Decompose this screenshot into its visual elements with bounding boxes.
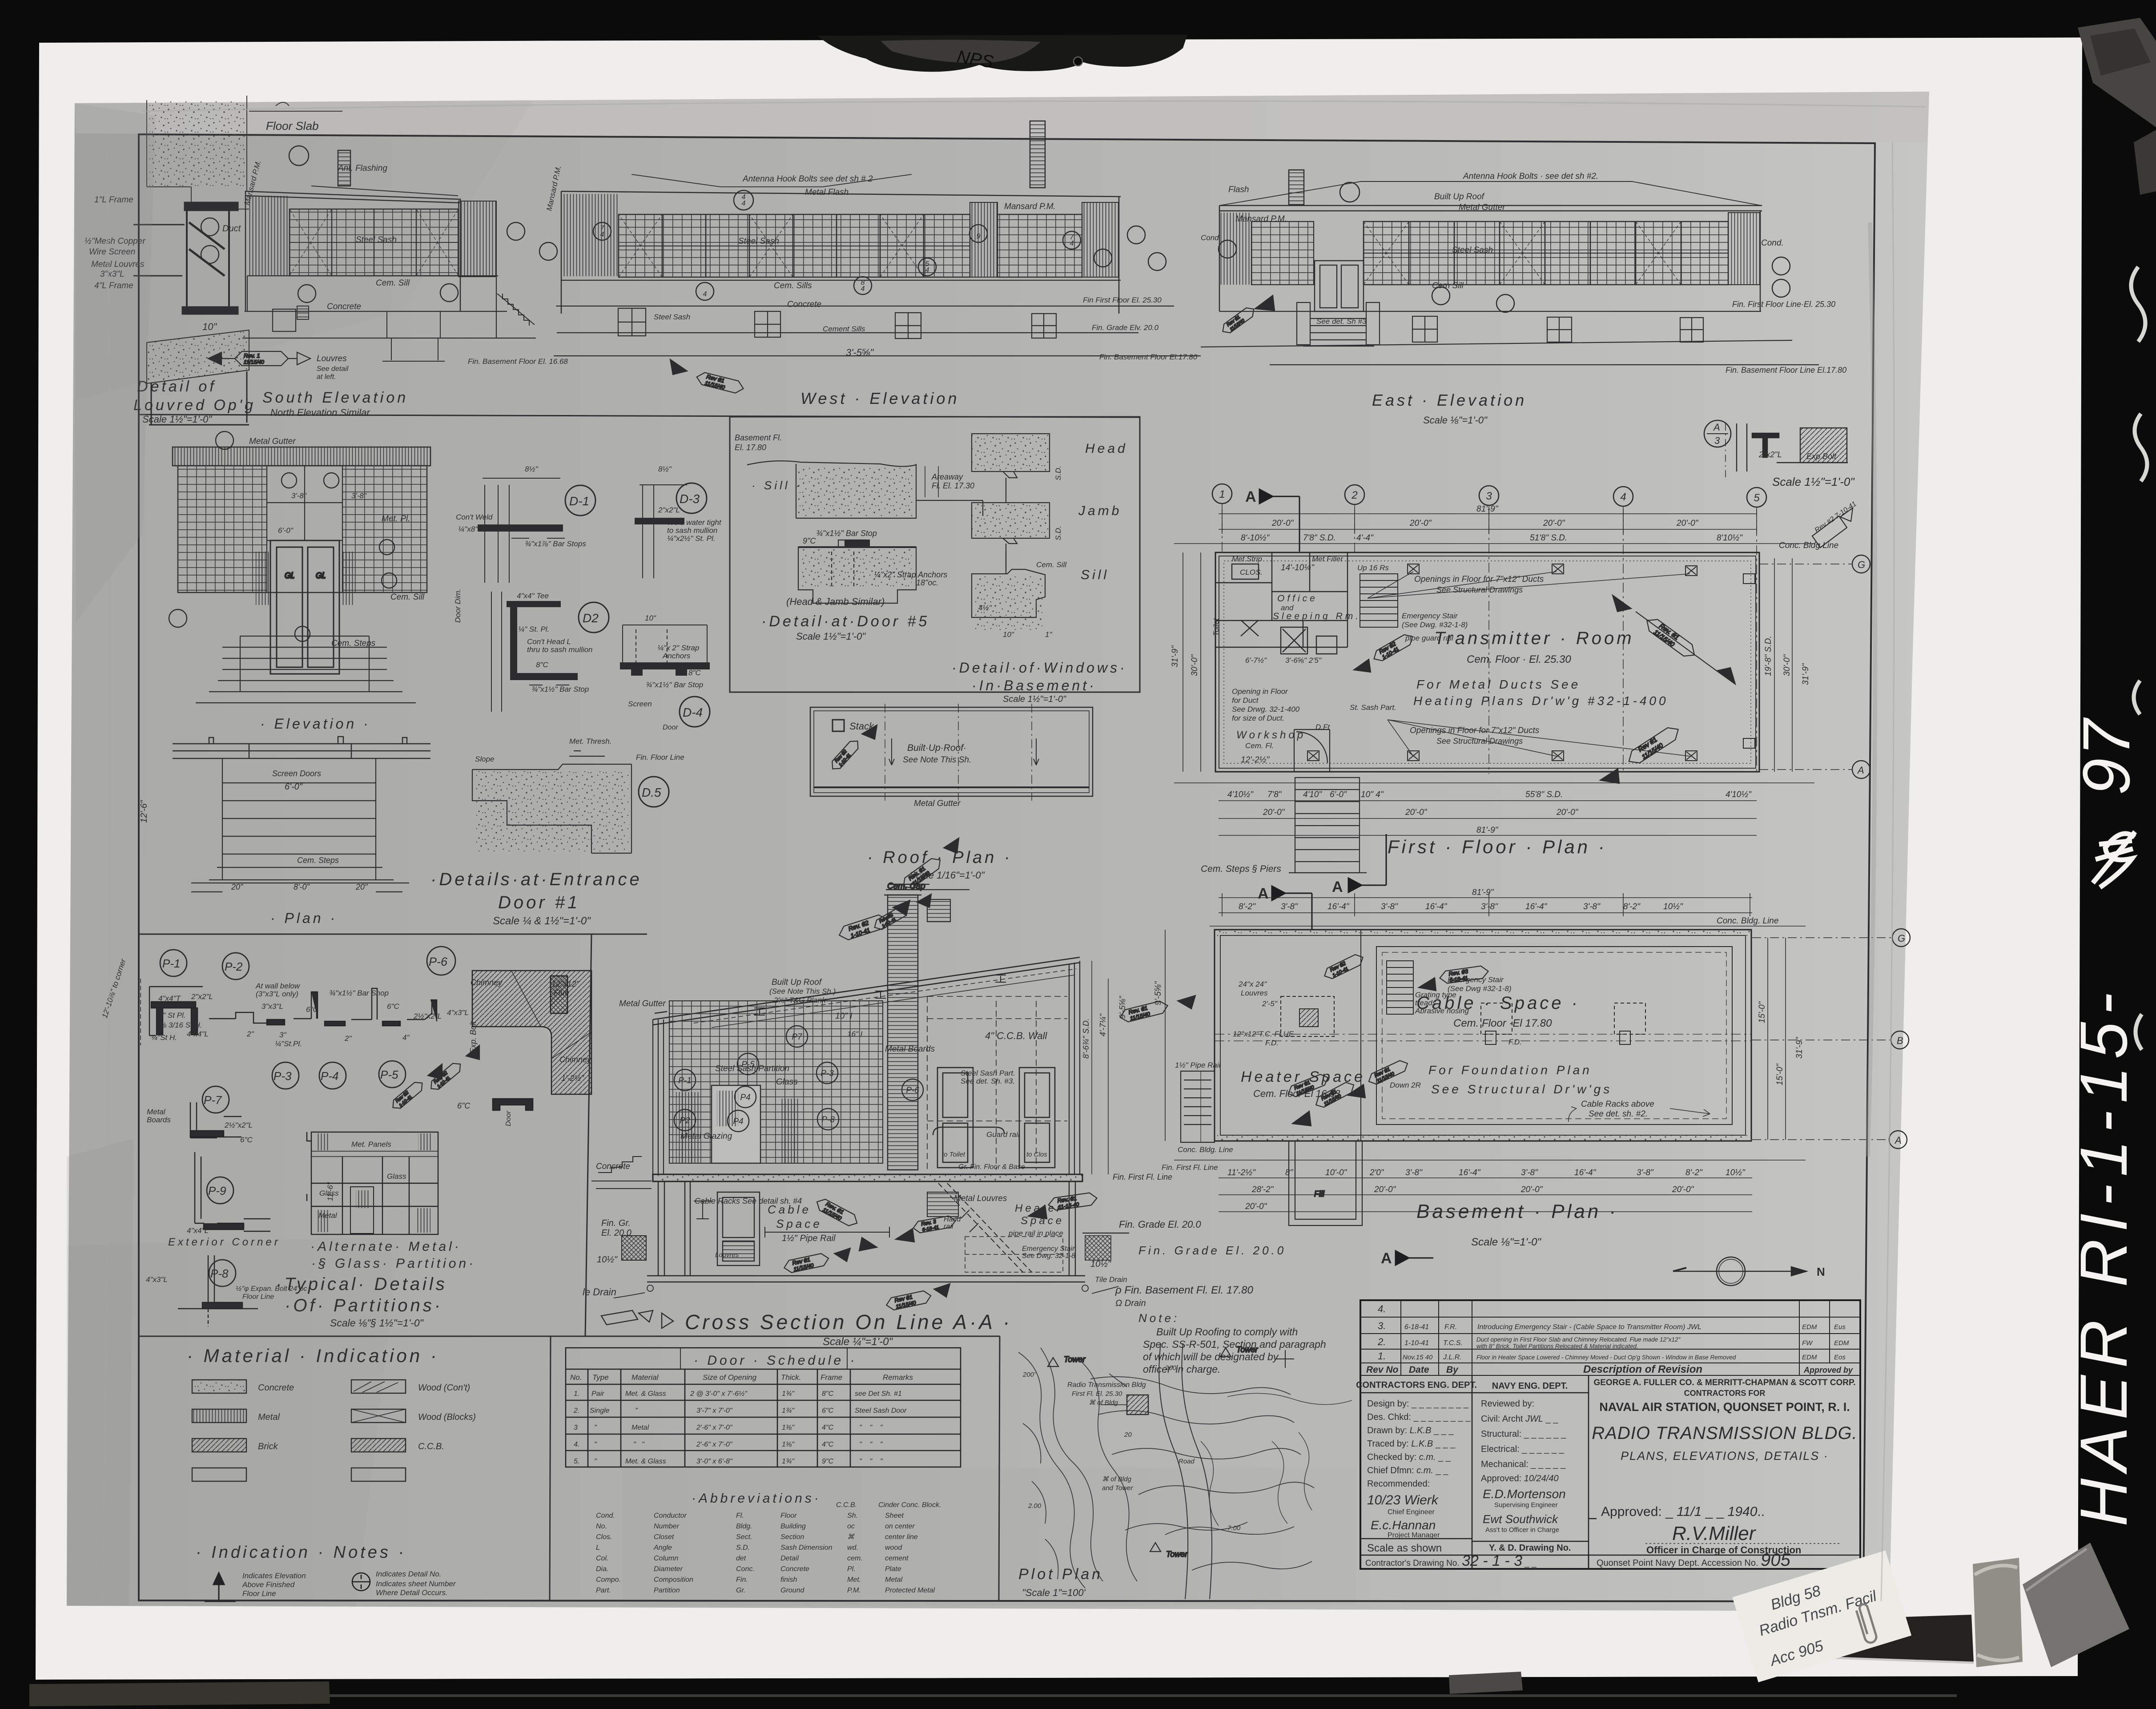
svg-text:P-3: P-3 [821,1069,834,1078]
svg-text:2'-5": 2'-5" [1262,1000,1278,1008]
svg-text:Cond.: Cond. [1201,234,1221,242]
svg-text:Traced by: L.K.B _ _ _: Traced by: L.K.B _ _ _ [1367,1439,1456,1449]
svg-text:1½" Pipe Rail: 1½" Pipe Rail [782,1233,836,1243]
svg-text:10" 4": 10" 4" [1361,790,1384,799]
svg-text:P-3: P-3 [274,1069,292,1083]
svg-text:P-4: P-4 [321,1069,338,1083]
svg-text:20": 20" [231,883,244,891]
svg-text:1'-2½": 1'-2½" [561,1074,584,1083]
svg-text:Slope: Slope [475,755,494,763]
svg-text:CLOS.: CLOS. [1240,568,1263,576]
svg-text:Conc. Bldg Line: Conc. Bldg Line [1779,541,1838,550]
svg-text:Fin. Grade El. 20.0: Fin. Grade El. 20.0 [1138,1244,1286,1257]
svg-text:Indicates sheet Number: Indicates sheet Number [376,1580,456,1588]
svg-text:Flue: Flue [554,988,569,997]
svg-text:Remarks: Remarks [883,1373,913,1382]
svg-text:200': 200' [1165,1364,1178,1372]
svg-text:to sash mullion: to sash mullion [667,526,717,535]
svg-text:rail: rail [944,1223,953,1230]
svg-text:11'-6": 11'-6" [326,1182,334,1201]
svg-text:20'-0": 20'-0" [1263,808,1285,817]
svg-text:Built Up Roofing to comply wit: Built Up Roofing to comply with [1156,1326,1298,1338]
svg-text:2": 2" [246,1030,254,1038]
svg-text:Met. Thresh.: Met. Thresh. [569,737,611,746]
svg-text:4"C: 4"C [822,1441,834,1448]
svg-text:" " ": " " " [859,1458,883,1465]
svg-text:Steel Sash Door: Steel Sash Door [855,1407,907,1415]
svg-text:8½": 8½" [658,465,672,473]
svg-text:Thick.: Thick. [781,1373,801,1382]
svg-text:¼"x8" St Pl.: ¼"x8" St Pl. [458,525,498,533]
svg-text:Metal Gutter: Metal Gutter [914,799,961,808]
svg-text:Transmitter · Room: Transmitter · Room [1434,629,1634,648]
svg-text:4: 4 [1620,491,1626,503]
svg-text:Project Manager: Project Manager [1388,1532,1440,1539]
svg-text:Type: Type [592,1373,609,1382]
svg-text:Flash: Flash [1228,185,1249,194]
svg-text:3'-8": 3'-8" [351,492,367,500]
svg-text:Scale ¼ & 1½"=1'-0": Scale ¼ & 1½"=1'-0" [493,915,591,927]
svg-text:31'-9": 31'-9" [1801,663,1810,685]
svg-text:Nov.15 40: Nov.15 40 [1403,1354,1433,1361]
svg-text:Guard rail: Guard rail [986,1130,1020,1139]
svg-text:First Fl. El. 25.30: First Fl. El. 25.30 [1072,1390,1122,1398]
svg-text:4: 4 [925,266,929,274]
svg-text:Con't Weld: Con't Weld [456,513,493,521]
svg-text:See Drwg. 32-1-400: See Drwg. 32-1-400 [1232,705,1300,713]
svg-text:3'-8": 3'-8" [1521,1168,1538,1177]
svg-text:Material: Material [632,1373,659,1382]
svg-text:to Toilet: to Toilet [942,1151,965,1158]
svg-text:E.D.Mortenson: E.D.Mortenson [1483,1487,1566,1501]
svg-text:Con't Head L: Con't Head L [527,637,571,646]
svg-text:Met. & Glass: Met. & Glass [625,1390,666,1398]
svg-text:Ewt Southwick: Ewt Southwick [1483,1512,1559,1526]
svg-text:3": 3" [279,1031,286,1039]
svg-text:20'-0": 20'-0" [1543,519,1565,528]
svg-text:6"C: 6"C [306,1005,318,1014]
svg-text:First · Floor · Plan ·: First · Floor · Plan · [1388,836,1607,857]
svg-text:For Foundation Plan: For Foundation Plan [1428,1063,1592,1077]
svg-text:Door #1: Door #1 [498,893,580,912]
svg-text:Metal Flash: Metal Flash [805,188,849,197]
svg-text:2"x2"L: 2"x2"L [658,506,680,514]
svg-text:¼"St H.: ¼"St H. [151,1033,177,1042]
svg-text:2.: 2. [573,1407,579,1415]
svg-text:8'-2": 8'-2" [1239,902,1256,911]
svg-text:South Elevation: South Elevation [262,389,408,406]
svg-text:D2: D2 [583,611,599,625]
svg-text:· Elevation ·: · Elevation · [260,716,371,732]
svg-text:L: L [596,1544,600,1552]
svg-text:2'0": 2'0" [1369,1168,1384,1177]
svg-text:" " ": " " " [859,1424,883,1431]
svg-text:20'-0": 20'-0" [1374,1185,1396,1194]
svg-text:¼"x2½" St. Pl.: ¼"x2½" St. Pl. [667,534,715,543]
svg-text:6'-7½": 6'-7½" [1245,656,1267,665]
svg-text:6'-0": 6'-0" [1330,790,1347,799]
svg-text:A: A [1381,1250,1392,1267]
svg-text:El. 20.0: El. 20.0 [601,1228,632,1238]
svg-text:P4: P4 [740,1093,750,1102]
svg-text:Note:: Note: [1138,1311,1179,1325]
svg-text:Recommended:: Recommended: [1367,1479,1430,1489]
svg-text:Emergency Stair: Emergency Stair [1022,1245,1075,1253]
svg-text:Approved by: Approved by [1803,1366,1853,1374]
svg-text:3'-8": 3'-8" [291,492,307,500]
svg-text:A: A [1258,885,1269,902]
svg-text:30'-0": 30'-0" [1190,654,1199,676]
svg-text:Weld water tight: Weld water tight [667,518,722,527]
svg-text:4: 4 [1070,240,1074,247]
svg-text:J.L.R.: J.L.R. [1443,1354,1462,1361]
svg-text:Supervising Engineer: Supervising Engineer [1494,1501,1558,1509]
svg-text:F.D.: F.D. [1265,1039,1279,1047]
svg-text:5.: 5. [574,1458,579,1465]
svg-text:Metal Glazing: Metal Glazing [680,1132,732,1141]
svg-text:¼"x2" Strap Anchors: ¼"x2" Strap Anchors [874,570,947,579]
svg-text:1.: 1. [574,1390,579,1398]
svg-text:3'-6⅝" 2'5": 3'-6⅝" 2'5" [1285,656,1322,665]
svg-text:Openings in Floor for 7"x12" D: Openings in Floor for 7"x12" Ducts [1414,575,1544,584]
svg-text:(See Dwg #32-1-8): (See Dwg #32-1-8) [1448,984,1512,993]
svg-text:Cross Section On Line A·A ·: Cross Section On Line A·A · [685,1310,1012,1334]
svg-text:5: 5 [1754,492,1760,504]
svg-text:81'-9": 81'-9" [1472,888,1494,897]
svg-text:A: A [1245,488,1256,505]
svg-text:Date: Date [1409,1365,1429,1375]
svg-text:Metal Gutter: Metal Gutter [619,999,666,1008]
svg-text:ρ Fin. Basement Fl. El. 17.80: ρ Fin. Basement Fl. El. 17.80 [1115,1284,1254,1296]
svg-text:Design by: _ _ _ _ _ _ _ _: Design by: _ _ _ _ _ _ _ _ [1367,1399,1469,1409]
svg-text:Y. & D. Drawing No.: Y. & D. Drawing No. [1489,1543,1571,1553]
svg-text:¾"x1½" Bar Stop: ¾"x1½" Bar Stop [816,529,877,538]
svg-text:Mansard P.M.: Mansard P.M. [1235,214,1287,224]
svg-text:Steel Sash: Steel Sash [654,313,690,321]
svg-text:97: 97 [2069,717,2144,795]
svg-text:9'-5⅝": 9'-5⅝" [1118,996,1127,1019]
svg-text:Description of Revision: Description of Revision [1583,1363,1702,1375]
svg-text:1¾": 1¾" [782,1390,795,1398]
svg-text:Chief Engineer: Chief Engineer [1388,1508,1435,1516]
svg-text:·In·Basement·: ·In·Basement· [972,677,1097,693]
svg-text:2½"x2"L: 2½"x2"L [224,1121,253,1129]
svg-text:20'-0": 20'-0" [1405,808,1428,817]
svg-text:· Sill ·: · Sill · [752,479,802,492]
svg-text:10'-0": 10'-0" [1325,1168,1347,1177]
svg-text:8'-0": 8'-0" [294,883,310,891]
svg-text:·Details·at·Entrance: ·Details·at·Entrance [430,870,642,889]
svg-text:Met. Panels: Met. Panels [351,1140,391,1149]
svg-text:¾"x1½" Bar Shop: ¾"x1½" Bar Shop [329,989,389,997]
svg-text:Metal: Metal [632,1424,649,1431]
svg-text:Screen: Screen [628,700,652,708]
svg-text:East · Elevation: East · Elevation [1372,391,1527,409]
svg-text:16" I: 16" I [847,1030,863,1038]
svg-text:10" I: 10" I [835,1012,853,1021]
svg-text:4": 4" [402,1033,410,1042]
svg-text:1": 1" [1045,630,1052,639]
svg-text:Des. Chkd: _ _ _ _ _ _ _ _: Des. Chkd: _ _ _ _ _ _ _ _ [1367,1412,1471,1422]
svg-text:Duct opening in First Floor Sl: Duct opening in First Floor Slab and Chi… [1476,1336,1681,1343]
svg-text:4½": 4½" [978,604,992,612]
svg-text:Door: Door [505,1111,512,1126]
svg-text:Frame: Frame [821,1373,842,1382]
svg-text:Scale as shown: Scale as shown [1367,1542,1442,1554]
svg-text:for Duct: for Duct [1232,696,1259,705]
svg-text:Fin. Gr.: Fin. Gr. [601,1218,631,1228]
svg-text:See det. Sh #3: See det. Sh #3 [1316,317,1367,326]
svg-text:G: G [1858,559,1865,570]
svg-text:Door Dim.: Door Dim. [454,588,462,623]
svg-text:8"C: 8"C [688,669,701,677]
svg-text:Toilet: Toilet [1212,618,1220,636]
svg-text:2½"x2"L: 2½"x2"L [413,1012,442,1020]
svg-text:Fin. First Floor Line·El. 25.3: Fin. First Floor Line·El. 25.30 [1732,300,1835,309]
svg-text:Cem. Steps: Cem. Steps [297,856,339,865]
svg-text:Mechanical: _ _ _ _ _: Mechanical: _ _ _ _ _ [1481,1459,1566,1469]
svg-text:19'-8" S.D.: 19'-8" S.D. [1764,636,1773,676]
svg-text:Radio Transmission Bldg: Radio Transmission Bldg [1067,1381,1146,1389]
svg-text:Glass: Glass [387,1172,406,1181]
svg-text:(See Dwg. #32-1-8): (See Dwg. #32-1-8) [1402,621,1468,629]
svg-text:See Dwg. 32-1-8: See Dwg. 32-1-8 [1022,1252,1075,1260]
svg-text:P-5: P-5 [380,1068,398,1081]
svg-text:See detail: See detail [317,365,349,373]
svg-text:CONTRACTORS FOR: CONTRACTORS FOR [1684,1389,1766,1398]
svg-text:18"oc.: 18"oc. [916,578,938,587]
svg-text:Steel Sash: Steel Sash [1452,246,1493,255]
svg-text:3"x3"L: 3"x3"L [261,1002,283,1011]
svg-text:12'-6": 12'-6" [139,800,149,823]
svg-text:6"C: 6"C [457,1101,471,1110]
svg-text:1¾": 1¾" [782,1458,795,1465]
svg-text:N: N [1817,1265,1825,1278]
svg-text:20'-0": 20'-0" [1556,808,1579,817]
svg-text:Part.: Part. [596,1587,611,1594]
svg-text:C.C.B.: C.C.B. [418,1442,444,1451]
svg-text:P-1: P-1 [162,957,180,970]
svg-text:Metal Gutter: Metal Gutter [1459,203,1505,212]
svg-text:thru to sash mullion: thru to sash mullion [527,645,592,654]
svg-text:20: 20 [1124,1431,1132,1439]
svg-text:4" C.C.B. Wall: 4" C.C.B. Wall [985,1030,1048,1041]
svg-text:·Detail·at·Door #5: ·Detail·at·Door #5 [761,613,929,630]
svg-text:· Door · Schedule ·: · Door · Schedule · [694,1353,857,1368]
svg-text:Areaway: Areaway [931,472,963,481]
svg-text:Met. Pl.: Met. Pl. [382,514,410,524]
svg-text:15'-0": 15'-0" [1775,1063,1785,1085]
svg-text:Scale ¼"=1'-0": Scale ¼"=1'-0" [823,1336,893,1348]
svg-text:Chimney: Chimney [471,978,503,987]
svg-text:with 8" Brick. Toilet Partiti: with 8" Brick. Toilet Partitions Relocat… [1476,1343,1638,1350]
svg-text:Spec. SS-R-501, Section and pa: Spec. SS-R-501, Section and paragraph [1143,1338,1326,1350]
svg-text:at left.: at left. [317,373,336,381]
svg-text:11/15/40: 11/15/40 [244,359,264,365]
svg-text:8'-10½": 8'-10½" [1241,533,1270,543]
svg-text:P-5: P-5 [741,1060,755,1069]
svg-text:9'-5⅝": 9'-5⅝" [1154,981,1163,1005]
svg-text:T.C.S.: T.C.S. [1443,1339,1463,1347]
svg-text:E.c.Hannan: E.c.Hannan [1371,1518,1436,1532]
svg-text:of which will be designated by: of which will be designated by [1143,1351,1279,1362]
svg-text:Fin. Floor Line: Fin. Floor Line [636,753,684,762]
svg-text:to Clos: to Clos [1026,1151,1047,1158]
svg-text:RADIO TRANSMISSION BLDG.: RADIO TRANSMISSION BLDG. [1592,1423,1857,1443]
svg-text:10½": 10½" [597,1255,618,1265]
svg-text:Cable Racks above: Cable Racks above [1581,1100,1654,1109]
svg-text:4"C: 4"C [822,1424,834,1431]
svg-text:¼"St.Pl.: ¼"St.Pl. [275,1040,302,1048]
svg-text:Fin First Floor El. 25.30: Fin First Floor El. 25.30 [1083,296,1162,304]
svg-text:By: By [1446,1365,1459,1375]
svg-text:Cem. Sills: Cem. Sills [774,281,812,290]
svg-text:Size of Opening: Size of Opening [703,1373,757,1382]
svg-text:EDM: EDM [1802,1323,1817,1331]
svg-text:(See Note This Sh.): (See Note This Sh.) [769,987,836,996]
svg-text:Louvres: Louvres [715,1251,739,1259]
svg-text:2⅝" T&G Plank: 2⅝" T&G Plank [773,996,826,1004]
svg-text:Cem. Fl.: Cem. Fl. [1245,742,1274,750]
svg-text:Mansard P.M.: Mansard P.M. [1004,202,1056,211]
svg-text:Heating Plans Dr'w'g #32-1-400: Heating Plans Dr'w'g #32-1-400 [1413,694,1669,708]
svg-text:Gr. Fin. Floor & Base: Gr. Fin. Floor & Base [958,1163,1025,1171]
svg-text:See Structural Drawings: See Structural Drawings [1436,585,1523,594]
svg-text:S.D.: S.D. [1054,466,1062,480]
svg-text:Steel Sash: Steel Sash [738,237,779,246]
svg-text:P-2: P-2 [225,960,243,973]
svg-text:Where Detail Occurs.: Where Detail Occurs. [376,1588,448,1597]
svg-text:Chief Dfmn: c.m. _ _: Chief Dfmn: c.m. _ _ [1367,1466,1448,1475]
svg-text:2 @ 3'-0" x 7'-6½": 2 @ 3'-0" x 7'-6½" [690,1390,748,1398]
svg-text:Electrical: _ _ _ _ _ _: Electrical: _ _ _ _ _ _ [1481,1444,1565,1454]
svg-text:Gl.: Gl. [316,571,326,580]
svg-text:200': 200' [1022,1371,1036,1378]
svg-text:12"x12"T.C. FLUE: 12"x12"T.C. FLUE [1233,1030,1294,1038]
svg-text:1.: 1. [1378,1350,1386,1362]
svg-text:Introducing Emergency Stair -: Introducing Emergency Stair - (Cable Spa… [1477,1323,1701,1331]
svg-text:NAVY ENG. DEPT.: NAVY ENG. DEPT. [1492,1381,1568,1391]
svg-text:¾"x1½" Bar Stop: ¾"x1½" Bar Stop [646,681,703,689]
svg-text:Cond.: Cond. [596,1512,615,1520]
svg-text:Scale ⅛"=1'-0": Scale ⅛"=1'-0" [1471,1236,1542,1248]
svg-text:Tower: Tower [1064,1355,1086,1364]
svg-text:3: 3 [1486,490,1492,502]
svg-text:le Drain: le Drain [583,1286,616,1298]
svg-text:16'-4": 16'-4" [1525,902,1548,911]
svg-text:⅛" St Pl.: ⅛" St Pl. [157,1011,186,1020]
svg-text:Compo.: Compo. [596,1576,621,1584]
svg-text:HAER RI-1-15-: HAER RI-1-15- [2066,985,2141,1527]
svg-text:Built Up Roof: Built Up Roof [772,978,822,987]
svg-text:·Detail·of·Windows·: ·Detail·of·Windows· [952,660,1127,676]
svg-text:Metal Louvres: Metal Louvres [954,1194,1007,1203]
svg-text:81'-9": 81'-9" [1476,504,1499,514]
svg-text:Screen Doors: Screen Doors [272,769,321,778]
svg-text:Tower: Tower [1236,1345,1258,1354]
svg-text:1¾": 1¾" [782,1407,795,1415]
svg-text:4: 4 [861,285,865,293]
svg-text:Cem. Floor ·El 17.80: Cem. Floor ·El 17.80 [1453,1017,1552,1029]
svg-text:4"x3"L: 4"x3"L [447,1008,469,1017]
svg-text:P2: P2 [680,1116,690,1125]
svg-text:6"C: 6"C [387,1002,399,1011]
svg-text:F.R.: F.R. [1444,1323,1457,1331]
svg-text:P-6: P-6 [429,955,448,968]
svg-text:¼" St. Pl.: ¼" St. Pl. [518,625,549,633]
svg-text:Glass: Glass [776,1077,798,1087]
svg-text:Anchors: Anchors [662,652,691,660]
svg-text:GEORGE A. FULLER CO. & MERRITT: GEORGE A. FULLER CO. & MERRITT-CHAPMAN &… [1593,1378,1855,1387]
svg-text:Cem. Steps § Piers: Cem. Steps § Piers [1201,864,1281,874]
svg-text:8"C: 8"C [822,1390,834,1398]
svg-text:Pair: Pair [591,1390,604,1398]
svg-text:Scale 1½"=1'-0": Scale 1½"=1'-0" [796,631,866,642]
svg-text:Checked by: c.m. _ _: Checked by: c.m. _ _ [1367,1452,1451,1462]
svg-text:for size of Duct.: for size of Duct. [1232,714,1284,722]
svg-text:North Elevation Similar: North Elevation Similar [270,407,370,418]
svg-text:See Structural Drawings: See Structural Drawings [1436,737,1523,746]
svg-text:8'-2": 8'-2" [1685,1168,1703,1177]
svg-text:Approved: 10/24/40: Approved: 10/24/40 [1481,1474,1559,1483]
svg-text:P-9: P-9 [208,1184,226,1197]
svg-text:treads: treads [1415,999,1436,1007]
svg-text:2.: 2. [1377,1336,1386,1347]
svg-text:Metal: Metal [147,1108,166,1116]
svg-text:Cem. Steps: Cem. Steps [331,639,376,648]
svg-text:P4: P4 [733,1117,743,1126]
svg-text:Steel Sash Part.: Steel Sash Part. [961,1069,1015,1077]
svg-text:10½": 10½" [1663,902,1683,911]
svg-text:Ass't to Officer in Charge: Ass't to Officer in Charge [1485,1526,1559,1534]
svg-text:Rev No: Rev No [1366,1365,1399,1375]
svg-text:81'-9": 81'-9" [1476,826,1499,835]
svg-text:Met Strip: Met Strip [1232,555,1262,563]
svg-text:D-1: D-1 [569,494,589,508]
svg-text:4'10½": 4'10½" [1726,790,1752,799]
svg-text:Metal: Metal [318,1211,338,1220]
svg-text:No.: No. [570,1373,582,1382]
svg-text:12"x12": 12"x12" [551,979,579,988]
svg-text:20'-0": 20'-0" [1520,1185,1543,1194]
svg-text:D-3: D-3 [680,492,700,506]
svg-text:Basement Fl.: Basement Fl. [735,433,782,442]
svg-text:20": 20" [355,883,368,891]
svg-text:Exp Bolt: Exp Bolt [1806,452,1837,461]
svg-text:Fin. Basement Floor El.17.80: Fin. Basement Floor El.17.80 [1099,353,1198,361]
svg-text:At wall below: At wall below [255,982,301,990]
svg-text:4"x4"L: 4"x4"L [187,1030,209,1038]
svg-text:9: 9 [977,233,981,240]
svg-text:Fl. El. 17.30: Fl. El. 17.30 [932,481,974,490]
svg-text:Jamb: Jamb [1078,504,1122,518]
svg-text:4: 4 [742,200,746,207]
svg-text:Met. & Glass: Met. & Glass [625,1458,666,1465]
svg-text:1⅜": 1⅜" [782,1424,795,1431]
svg-text:16'-4": 16'-4" [1327,902,1350,911]
svg-text:See det. Sh. #3.: See det. Sh. #3. [961,1077,1015,1085]
svg-text:Col.: Col. [596,1555,608,1562]
svg-text:" " ": " " " [859,1441,883,1448]
svg-text:⌘ of Bldg: ⌘ of Bldg [1089,1399,1118,1407]
svg-text:Antenna Hook Bolts · see det s: Antenna Hook Bolts · see det sh #2. [1463,172,1598,181]
svg-text:Louvred Op'g: Louvred Op'g [133,397,256,414]
svg-text:7'8": 7'8" [1267,790,1282,799]
svg-text:Detail of: Detail of [137,378,217,395]
svg-text:3'-8": 3'-8" [1281,902,1298,911]
svg-text:Opening in Floor: Opening in Floor [1232,687,1288,696]
svg-text:P7: P7 [792,1032,803,1042]
